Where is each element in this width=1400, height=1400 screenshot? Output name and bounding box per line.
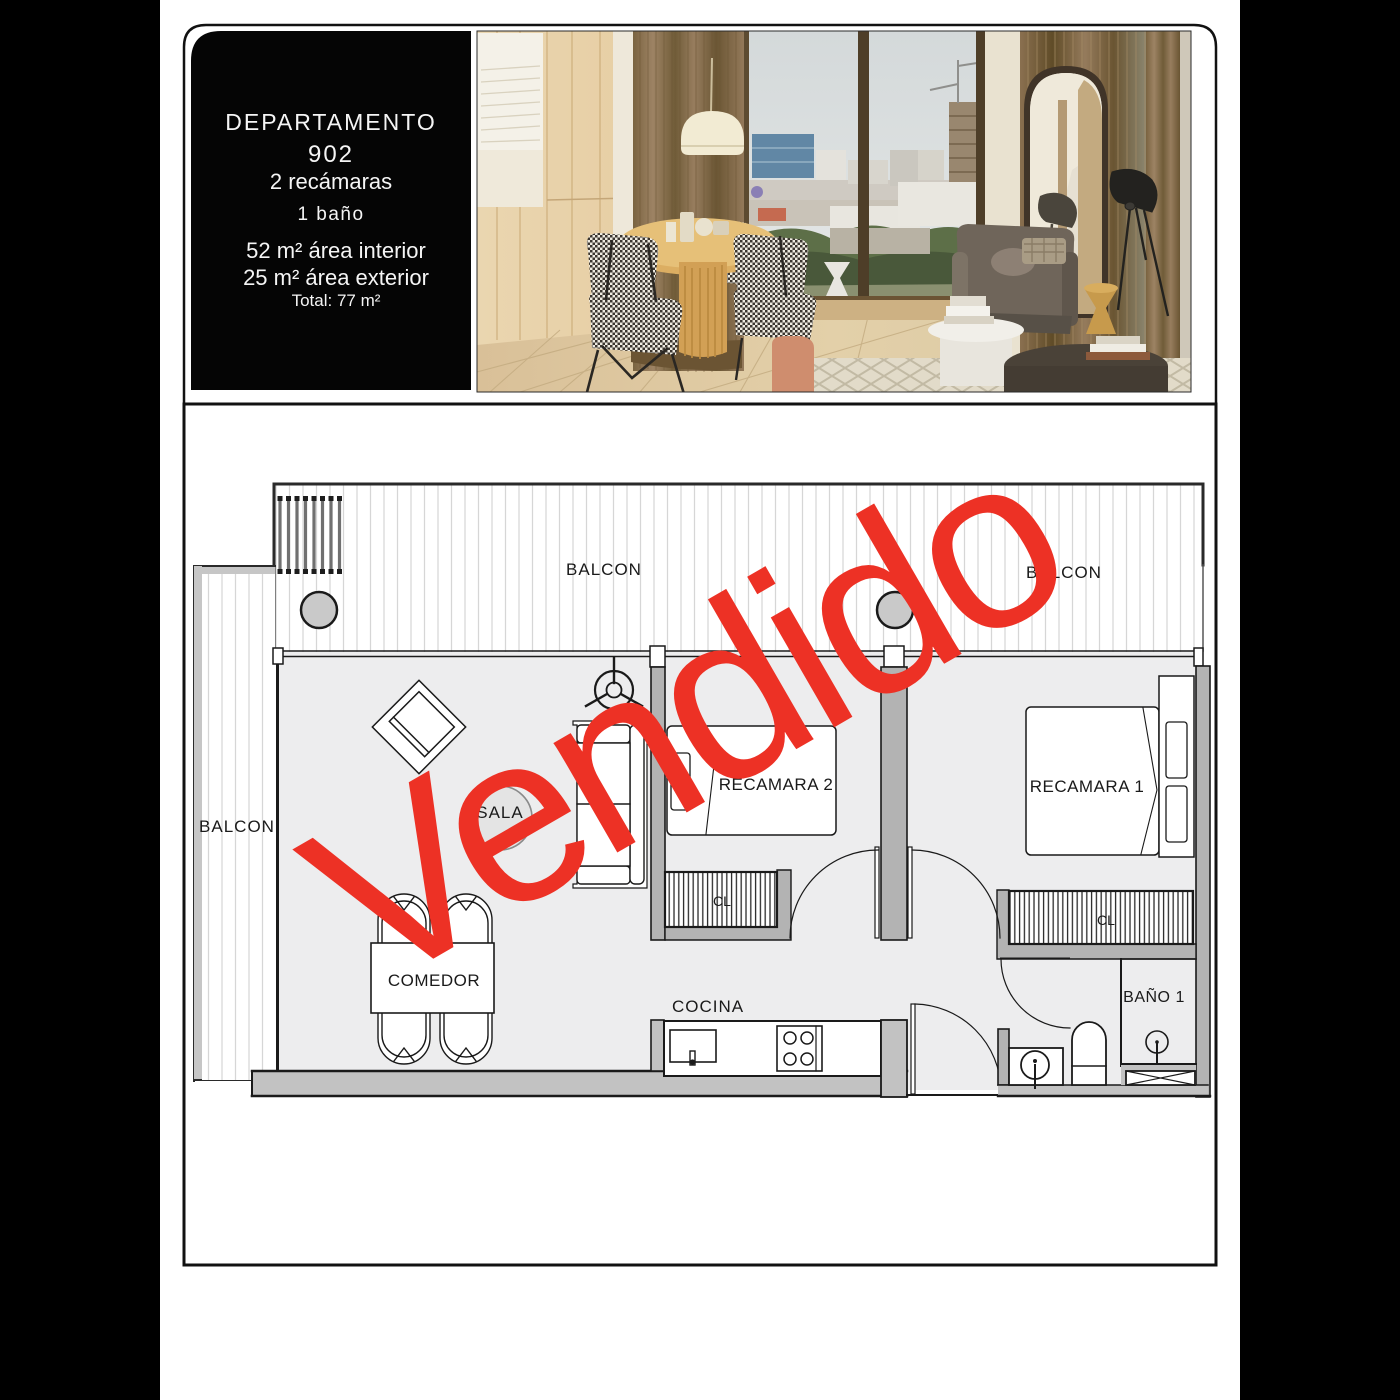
svg-text:BALCON: BALCON bbox=[199, 817, 275, 836]
svg-text:BAÑO 1: BAÑO 1 bbox=[1123, 986, 1185, 1006]
svg-text:RECAMARA 1: RECAMARA 1 bbox=[1030, 777, 1145, 796]
svg-text:1 baño: 1 baño bbox=[297, 204, 364, 225]
svg-text:CL: CL bbox=[713, 893, 731, 909]
svg-text:52 m² área interior: 52 m² área interior bbox=[246, 238, 426, 263]
svg-text:CL: CL bbox=[1097, 912, 1115, 928]
svg-text:COCINA: COCINA bbox=[672, 997, 744, 1016]
svg-text:Total: 77 m²: Total: 77 m² bbox=[292, 291, 381, 310]
svg-text:BALCON: BALCON bbox=[566, 560, 642, 579]
svg-text:902: 902 bbox=[308, 141, 354, 168]
svg-text:25 m² área exterior: 25 m² área exterior bbox=[243, 265, 429, 290]
svg-text:DEPARTAMENTO: DEPARTAMENTO bbox=[225, 109, 436, 135]
svg-text:2 recámaras: 2 recámaras bbox=[270, 169, 392, 194]
